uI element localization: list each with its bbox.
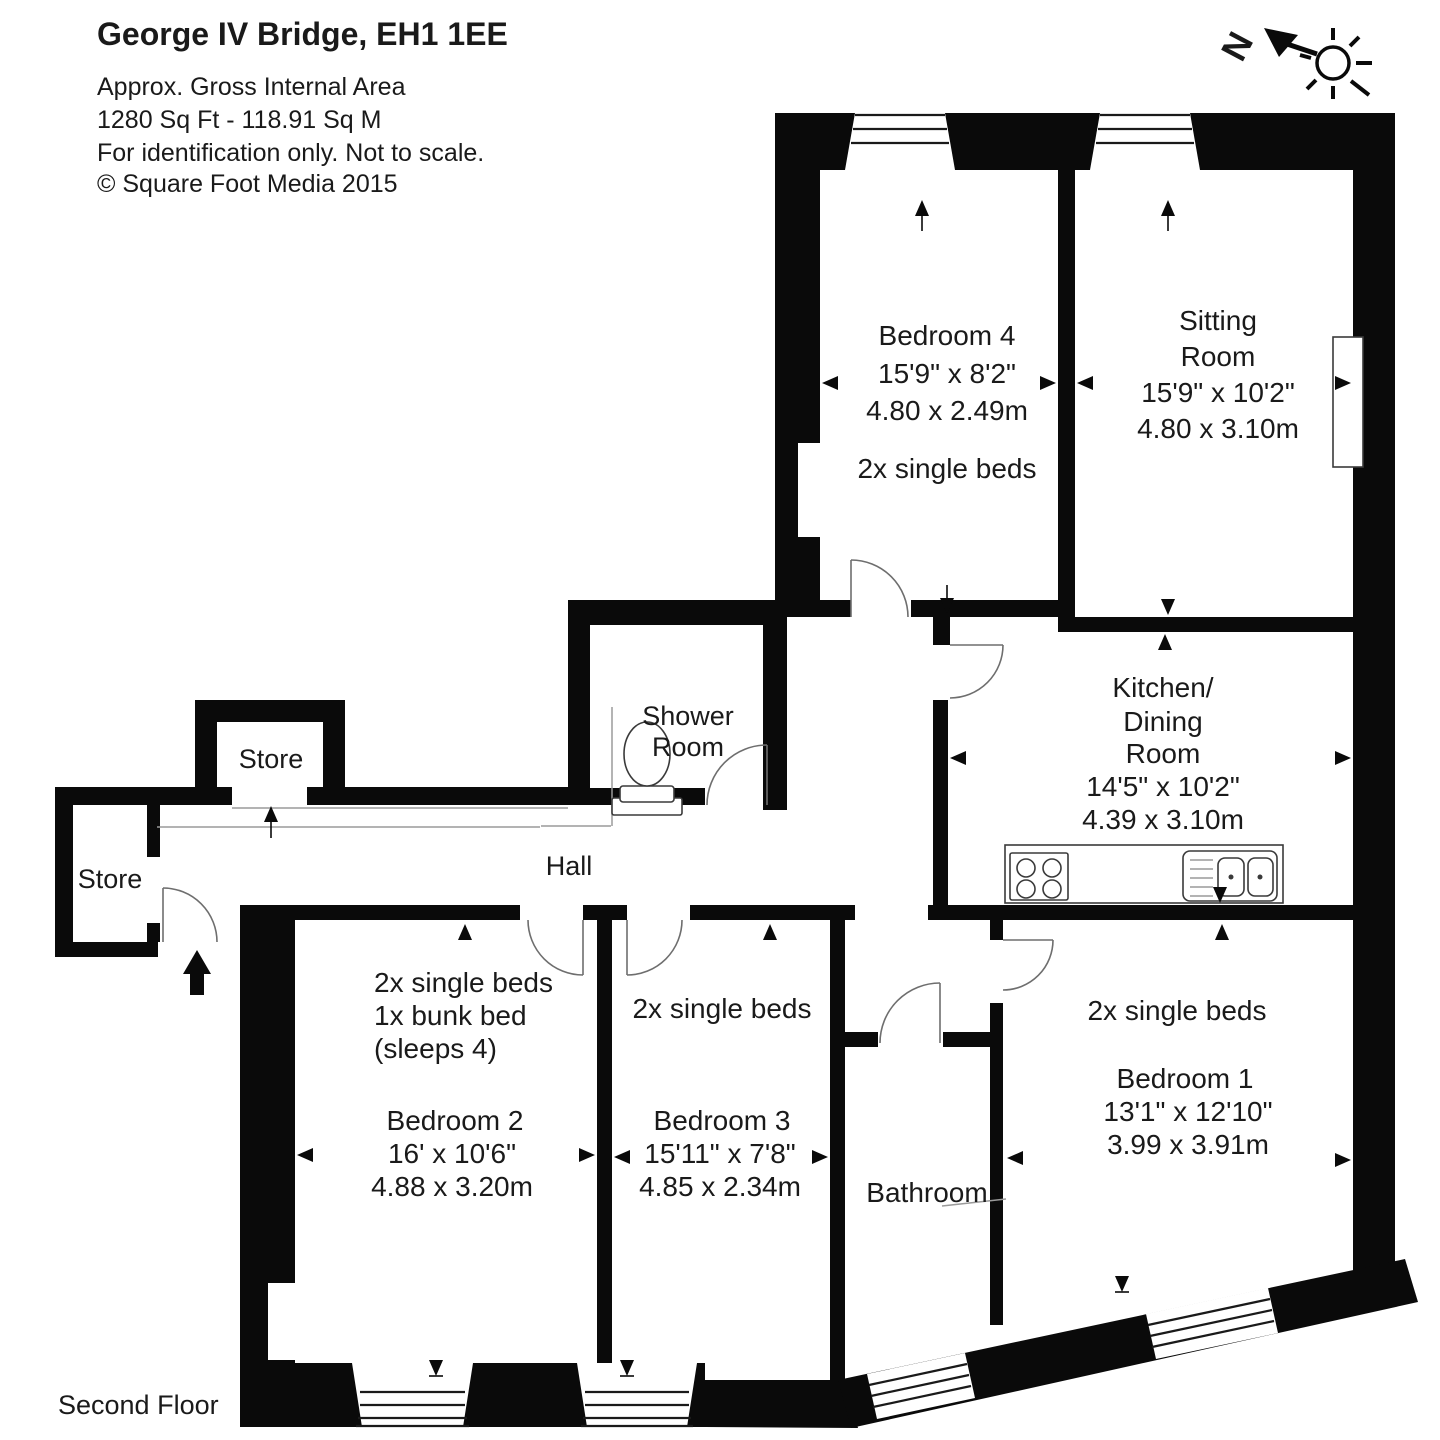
kitchen-door <box>950 645 1003 698</box>
sitting-room-window <box>1090 113 1200 170</box>
bathroom-label: Bathroom <box>866 1177 987 1208</box>
meta-line-1: Approx. Gross Internal Area <box>97 73 406 101</box>
floorplan-drawing: N George IV Bridge, EH1 1EE Approx. Gros… <box>0 0 1440 1440</box>
hall-label: Hall <box>546 851 593 881</box>
bedroom2-label: 2x single beds 1x bunk bed (sleeps 4) Be… <box>371 967 553 1202</box>
hob-icon <box>1010 853 1068 900</box>
sitting-room-label: Sitting Room 15'9" x 10'2" 4.80 x 3.10m <box>1137 305 1299 444</box>
sun-icon <box>1317 47 1349 79</box>
room-name: Kitchen/ <box>1112 672 1213 703</box>
bedroom4-label: Bedroom 4 15'9" x 8'2" 4.80 x 2.49m 2x s… <box>857 320 1036 484</box>
room-dim-imperial: 15'9" x 8'2" <box>878 358 1016 389</box>
meta-line-2: 1280 Sq Ft - 118.91 Sq M <box>97 106 381 134</box>
room-dim-metric: 4.88 x 3.20m <box>371 1171 533 1202</box>
bedroom3-label: 2x single beds Bedroom 3 15'11" x 7'8" 4… <box>632 993 811 1202</box>
room-name: Room <box>652 732 724 762</box>
room-name: Sitting <box>1179 305 1257 336</box>
north-arrow-icon <box>1264 28 1317 57</box>
room-name: Bedroom 2 <box>387 1105 524 1136</box>
entry-arrow-icon <box>183 950 211 995</box>
room-name: Shower <box>642 701 734 731</box>
entry-door <box>163 888 217 942</box>
meta-line-4: © Square Foot Media 2015 <box>97 170 398 198</box>
bedroom4-door <box>851 560 908 617</box>
sink-icon <box>1183 851 1277 901</box>
room-beds-note: (sleeps 4) <box>374 1033 497 1064</box>
meta-line-3: For identification only. Not to scale. <box>97 139 484 167</box>
room-dim-metric: 4.80 x 2.49m <box>866 395 1028 426</box>
store-left-label: Store <box>78 864 143 894</box>
room-dim-imperial: 15'9" x 10'2" <box>1141 377 1295 408</box>
room-name: Bedroom 3 <box>654 1105 791 1136</box>
fireplace-icon <box>1333 337 1363 467</box>
room-name: Room <box>1126 738 1201 769</box>
sun-rays-icon <box>1300 28 1372 99</box>
bathroom-door <box>880 983 940 1043</box>
page-title: George IV Bridge, EH1 1EE <box>97 16 508 52</box>
room-dim-metric: 4.80 x 3.10m <box>1137 413 1299 444</box>
room-beds-note: 2x single beds <box>1087 995 1266 1026</box>
compass: N <box>1213 25 1372 99</box>
shower-room-label: Shower Room <box>642 701 734 762</box>
kitchen-label: Kitchen/ Dining Room 14'5" x 10'2" 4.39 … <box>1082 672 1244 835</box>
store-top-label: Store <box>239 744 304 774</box>
room-dim-imperial: 16' x 10'6" <box>388 1138 516 1169</box>
room-name: Dining <box>1123 706 1202 737</box>
room-beds-note: 2x single beds <box>374 967 553 998</box>
room-name: Room <box>1181 341 1256 372</box>
room-dim-imperial: 14'5" x 10'2" <box>1086 771 1240 802</box>
room-beds-note: 1x bunk bed <box>374 1000 527 1031</box>
room-dim-metric: 3.99 x 3.91m <box>1107 1129 1269 1160</box>
room-dim-metric: 4.39 x 3.10m <box>1082 804 1244 835</box>
room-beds-note: 2x single beds <box>857 453 1036 484</box>
bedroom1-door <box>1003 940 1053 990</box>
room-dim-metric: 4.85 x 2.34m <box>639 1171 801 1202</box>
room-name: Bedroom 1 <box>1117 1063 1254 1094</box>
floor-label: Second Floor <box>58 1390 219 1420</box>
room-dim-imperial: 13'1" x 12'10" <box>1103 1096 1272 1127</box>
room-dim-imperial: 15'11" x 7'8" <box>644 1138 795 1169</box>
floorplan-page: N George IV Bridge, EH1 1EE Approx. Gros… <box>0 0 1440 1440</box>
bedroom1-label: 2x single beds Bedroom 1 13'1" x 12'10" … <box>1087 995 1272 1160</box>
room-name: Bedroom 4 <box>879 320 1016 351</box>
bedroom4-window <box>845 113 955 170</box>
north-label: N <box>1213 25 1261 67</box>
bedroom3-door <box>627 920 682 975</box>
room-beds-note: 2x single beds <box>632 993 811 1024</box>
